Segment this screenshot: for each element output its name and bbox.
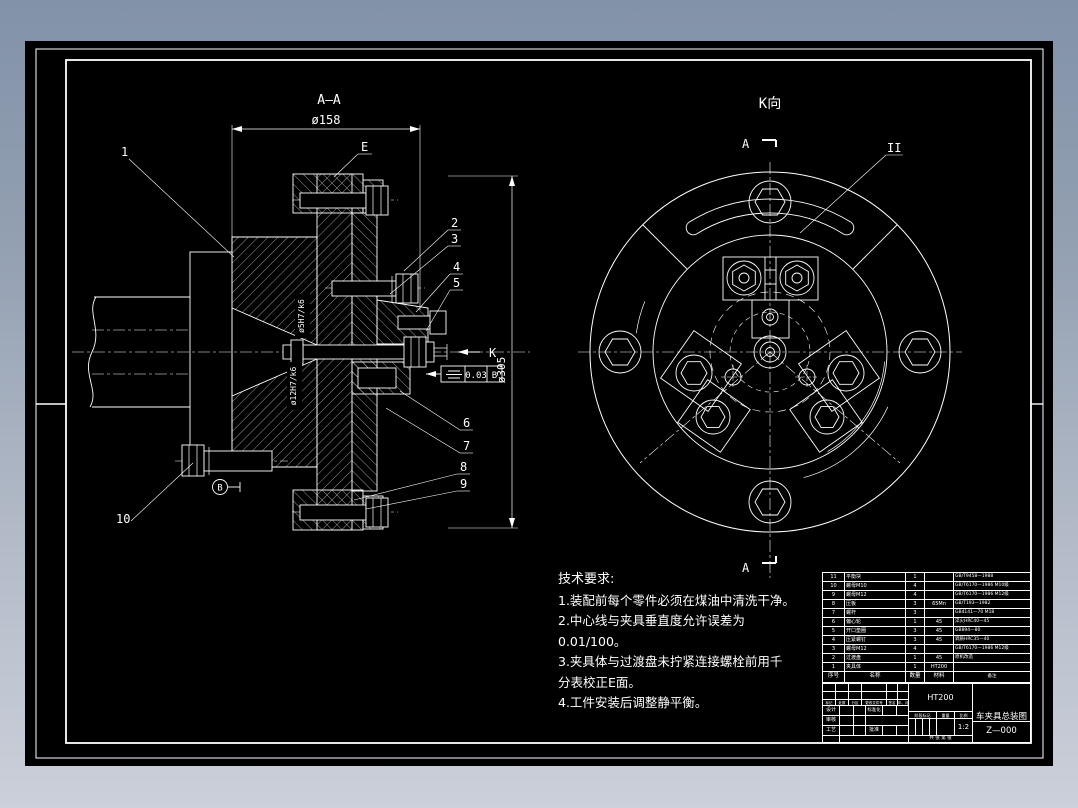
- bom-row: 8压板365MnGB/T193—1982: [823, 599, 1030, 608]
- bom-header-cell: 材料: [924, 672, 953, 682]
- tech-req-line: 2.中心线与夹具垂直度允许误差为: [558, 611, 826, 632]
- bom-cell: 9: [823, 591, 844, 599]
- cell: [823, 692, 836, 700]
- tech-req-line: 4.工件安装后调整静平衡。: [558, 693, 826, 714]
- bom-cell: 45: [924, 618, 953, 626]
- cell: [862, 684, 887, 692]
- bom-cell: GB/T193—1982: [953, 600, 1030, 608]
- bom-cell: [924, 582, 953, 590]
- bom-cell: 平衡块: [844, 573, 905, 581]
- bom-cell: 3: [823, 645, 844, 653]
- bom-header-cell: 名称: [844, 672, 905, 682]
- cell: [849, 684, 862, 692]
- role-check: 审核: [823, 716, 840, 726]
- bom-cell: 原机改造: [953, 654, 1030, 662]
- detail-label-ii: II: [887, 141, 901, 155]
- cell: [823, 684, 836, 692]
- cell: [923, 719, 930, 736]
- bom-header: 序号名称数量材料备注: [823, 671, 1030, 682]
- title-block: 标记处数分区更改文件号签名年、月、日 设计 标准化 审核 工艺 批准 HT200…: [822, 683, 1031, 743]
- role-process: 工艺: [823, 726, 840, 736]
- bom-cell: 2: [823, 654, 844, 662]
- date-cell: [854, 706, 866, 716]
- bom-cell: 1: [905, 654, 924, 662]
- revision-grid-row: [823, 684, 909, 692]
- sheet-note: 共 张 第 张: [909, 736, 973, 742]
- bom-cell: [953, 663, 1030, 671]
- bom-cell: 螺杆: [844, 609, 905, 617]
- bom-row: 7螺杆3GB4141—70 M18: [823, 608, 1030, 617]
- bom-cell: 4: [905, 591, 924, 599]
- bom-rows: 11平衡块1GB/T9458—198810螺母M104GB/T6170—1986…: [823, 573, 1030, 671]
- balloon-6: 6: [463, 416, 470, 430]
- bom-cell: 1: [905, 663, 924, 671]
- blank-cell: [866, 716, 909, 726]
- bom-row: 10螺母M104GB/T6170—1986 M10级: [823, 581, 1030, 590]
- face-label-e: E: [361, 140, 368, 154]
- bom-cell: 4: [823, 636, 844, 644]
- date-cell: [854, 716, 866, 726]
- cell: [849, 692, 862, 700]
- weight-cell: [937, 719, 955, 736]
- sign-cell: [883, 726, 897, 736]
- tech-requirements: 技术要求: 1.装配前每个零件必须在煤油中清洗干净。 2.中心线与夹具垂直度允许…: [558, 570, 826, 714]
- cell: [898, 684, 909, 692]
- bom-cell: 偏心轮: [844, 618, 905, 626]
- cell: [862, 692, 887, 700]
- bom-cell: 3: [905, 627, 924, 635]
- bom-cell: 65Mn: [924, 600, 953, 608]
- bom-cell: 夹具体: [844, 663, 905, 671]
- bom-cell: 11: [823, 573, 844, 581]
- balloon-7: 7: [463, 439, 470, 453]
- bom-cell: 45: [924, 636, 953, 644]
- tech-requirements-title: 技术要求:: [558, 570, 826, 591]
- bom-cell: HT200: [924, 663, 953, 671]
- tech-req-line: 3.夹具体与过渡盘未拧紧连接螺栓前用千: [558, 652, 826, 673]
- bom-cell: GB/T6170—1986 M12级: [953, 645, 1030, 653]
- sign-cell: [883, 706, 897, 716]
- bom-cell: 5: [823, 627, 844, 635]
- bom-row: 5开口垫圈345GB894—80: [823, 626, 1030, 635]
- k-arrow-label: K: [489, 346, 497, 360]
- bom-cell: 45: [924, 627, 953, 635]
- bom-header-cell: 序号: [823, 672, 844, 682]
- sign-cell: [840, 716, 854, 726]
- bom-cell: 螺母M12: [844, 645, 905, 653]
- revision-grid-row: [823, 692, 909, 700]
- bom-cell: GB/T6170—1986 M12级: [953, 591, 1030, 599]
- date-cell: [897, 726, 909, 736]
- bom-cell: 1: [905, 618, 924, 626]
- date-cell: [854, 726, 866, 736]
- cell: 阶段标记: [909, 712, 937, 719]
- bom-cell: 7: [823, 609, 844, 617]
- role-standard: 标准化: [866, 706, 883, 716]
- balloon-3: 3: [451, 232, 458, 246]
- cell: [887, 692, 898, 700]
- page: A—A ø158 ø305 ø5H7/k6 ø12H7/k6 0.03 B B …: [0, 0, 1078, 808]
- bom-cell: 1: [905, 573, 924, 581]
- balloon-2: 2: [451, 216, 458, 230]
- k-view-title: K向: [759, 96, 781, 112]
- fcf-tolerance: 0.03: [465, 371, 487, 381]
- cell: [836, 684, 849, 692]
- bom-row: 11平衡块1GB/T9458—1988: [823, 573, 1030, 581]
- bom-cell: 6: [823, 618, 844, 626]
- fcf-datum: B: [492, 371, 497, 381]
- bom-cell: [924, 645, 953, 653]
- bom-cell: [924, 609, 953, 617]
- bom-cell: 3: [905, 636, 924, 644]
- section-view-title: A—A: [317, 93, 341, 108]
- tech-req-line: 0.01/100。: [558, 632, 826, 653]
- balloon-4: 4: [453, 260, 460, 274]
- symmetry-symbol: [446, 371, 462, 378]
- bom-header-cell: 备注: [953, 672, 1030, 682]
- dim-158: ø158: [312, 113, 341, 127]
- bom-cell: 3: [905, 600, 924, 608]
- balloon-1: 1: [121, 145, 128, 159]
- bom-row: 2过渡盘145原机改造: [823, 653, 1030, 662]
- bom-row: 6偏心轮145淬火HRC40—45: [823, 617, 1030, 626]
- balloon-8: 8: [460, 460, 467, 474]
- sign-cell: [840, 726, 854, 736]
- balloon-5: 5: [453, 276, 460, 290]
- bom-cell: 开口垫圈: [844, 627, 905, 635]
- cell: [916, 719, 923, 736]
- bom-cell: GB4141—70 M18: [953, 609, 1030, 617]
- material-mark: HT200: [909, 684, 973, 712]
- bom-row: 9螺母M124GB/T6170—1986 M12级: [823, 590, 1030, 599]
- tech-req-line: 1.装配前每个零件必须在煤油中清洗干净。: [558, 591, 826, 612]
- bom-cell: 压板: [844, 600, 905, 608]
- bom-cell: 4: [905, 645, 924, 653]
- cell: 比例: [955, 712, 973, 719]
- bom-cell: 10: [823, 582, 844, 590]
- bom-row: 4压紧螺钉345调质HRC35—40: [823, 635, 1030, 644]
- cell: [909, 719, 916, 736]
- role-approve: 批准: [866, 726, 883, 736]
- stage-mark-cells: [909, 719, 937, 736]
- bom-cell: [924, 591, 953, 599]
- bom-cell: [924, 573, 953, 581]
- datum-b-label: B: [217, 484, 222, 494]
- section-mark-a-top: A: [742, 137, 750, 151]
- bom-row: 1夹具体1HT200: [823, 662, 1030, 671]
- drawing-number: Z—000: [973, 722, 1030, 742]
- k-view: [578, 140, 962, 578]
- sign-cell: [840, 706, 854, 716]
- bom-cell: 螺母M12: [844, 591, 905, 599]
- tech-req-line: 分表校正E面。: [558, 673, 826, 694]
- bom-cell: 45: [924, 654, 953, 662]
- bom-cell: GB894—80: [953, 627, 1030, 635]
- drawing-title: 车夹具总装图: [973, 684, 1030, 722]
- bom-cell: 调质HRC35—40: [953, 636, 1030, 644]
- date-cell: [897, 706, 909, 716]
- bom-cell: 压紧螺钉: [844, 636, 905, 644]
- cell: [930, 719, 937, 736]
- blank-cell: [840, 736, 909, 742]
- cell: 重量: [937, 712, 955, 719]
- fit-dia5: ø5H7/k6: [297, 299, 306, 333]
- bom-cell: 3: [905, 609, 924, 617]
- cell: [887, 684, 898, 692]
- balloon-10: 10: [116, 512, 130, 526]
- bom-cell: GB/T6170—1986 M10级: [953, 582, 1030, 590]
- bom-cell: 8: [823, 600, 844, 608]
- bom-cell: 过渡盘: [844, 654, 905, 662]
- scale-cell: 1:2: [955, 719, 973, 736]
- stage-header-row: 阶段标记重量比例: [909, 712, 973, 719]
- bom-cell: 4: [905, 582, 924, 590]
- balloon-9: 9: [460, 477, 467, 491]
- role-design: 设计: [823, 706, 840, 716]
- cell: [836, 692, 849, 700]
- cell: [898, 692, 909, 700]
- fit-dia12: ø12H7/k6: [289, 367, 298, 406]
- blank-cell: [823, 736, 840, 742]
- bom-cell: 1: [823, 663, 844, 671]
- bom-cell: 螺母M10: [844, 582, 905, 590]
- bom-table: 11平衡块1GB/T9458—198810螺母M104GB/T6170—1986…: [822, 572, 1031, 683]
- bom-cell: 淬火HRC40—45: [953, 618, 1030, 626]
- bom-header-cell: 数量: [905, 672, 924, 682]
- bom-cell: GB/T9458—1988: [953, 573, 1030, 581]
- bom-row: 3螺母M124GB/T6170—1986 M12级: [823, 644, 1030, 653]
